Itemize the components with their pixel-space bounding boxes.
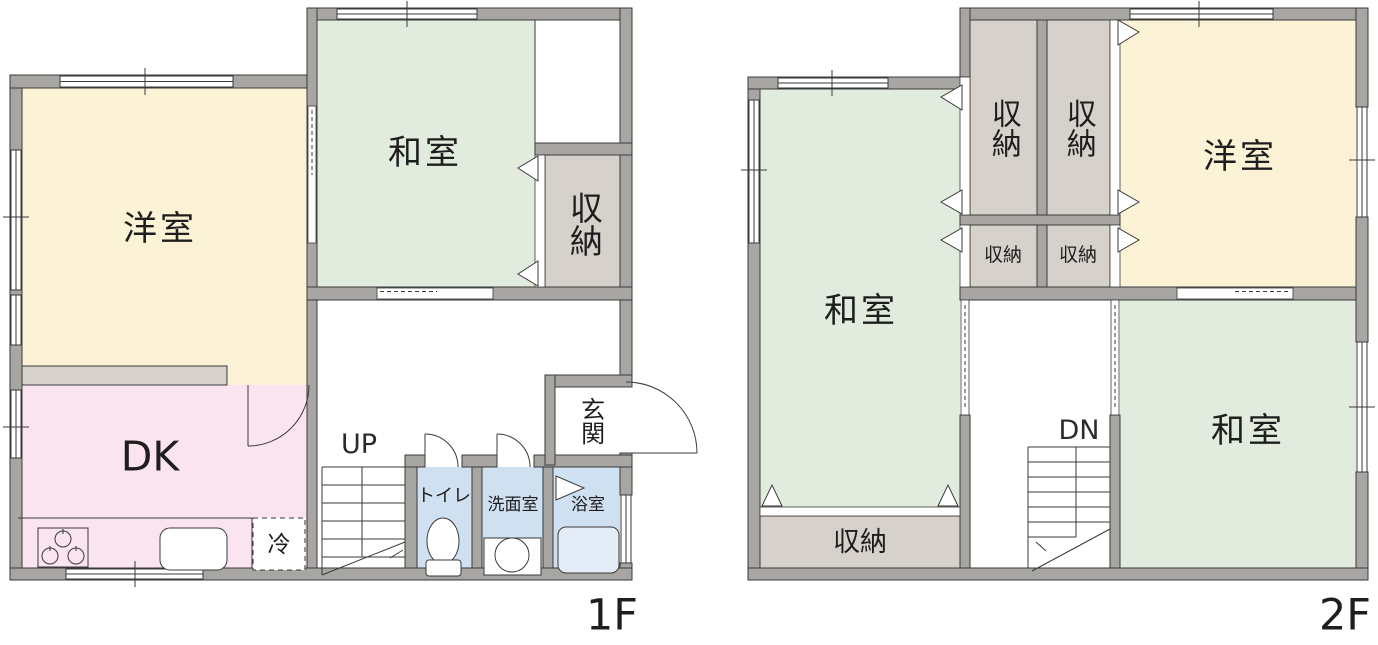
label-2f-japanese-room-left: 和室 xyxy=(824,294,898,330)
label-1f-up: UP xyxy=(341,431,377,459)
label-1f-bathroom: 浴室 xyxy=(571,497,605,515)
stairs-2f-down xyxy=(1028,447,1110,571)
label-1f-closet: 収納 xyxy=(566,191,601,257)
floor-plan-drawing xyxy=(0,0,1378,645)
label-2f-closet-tall-right: 収納 xyxy=(1062,98,1094,158)
closet-strip-1f xyxy=(18,366,227,385)
label-1f-fridge: 冷 xyxy=(268,533,291,557)
label-1f-western-room: 洋室 xyxy=(123,212,197,248)
label-2f-closet-small-left: 収納 xyxy=(984,246,1022,266)
label-2f-closet-bottom: 収納 xyxy=(833,529,887,557)
label-2f-floor: 2F xyxy=(1319,593,1371,638)
label-1f-toilet: トイレ xyxy=(417,488,471,507)
label-1f-floor: 1F xyxy=(586,593,638,638)
label-1f-entrance: 玄関 xyxy=(577,397,602,445)
floor-plan-canvas: 洋室 和室 収納 DK 冷 UP トイレ 洗面室 浴室 玄関 1F 和室 和室 … xyxy=(0,0,1378,645)
label-1f-washroom: 洗面室 xyxy=(488,497,539,515)
label-2f-western-room: 洋室 xyxy=(1203,140,1277,176)
stairs-1f-up xyxy=(322,467,405,575)
label-2f-dn: DN xyxy=(1059,417,1100,445)
washbasin-icon xyxy=(484,538,541,575)
label-2f-japanese-room-right: 和室 xyxy=(1211,414,1285,450)
toilet-icon xyxy=(426,518,461,576)
label-1f-japanese-room: 和室 xyxy=(388,136,462,172)
front-door-arc xyxy=(626,382,697,453)
bathtub-icon xyxy=(558,527,619,573)
label-2f-closet-tall-left: 収納 xyxy=(987,98,1019,158)
kitchen-sink-icon xyxy=(160,528,227,570)
label-2f-closet-small-right: 収納 xyxy=(1059,246,1097,266)
label-1f-dk: DK xyxy=(121,435,179,478)
